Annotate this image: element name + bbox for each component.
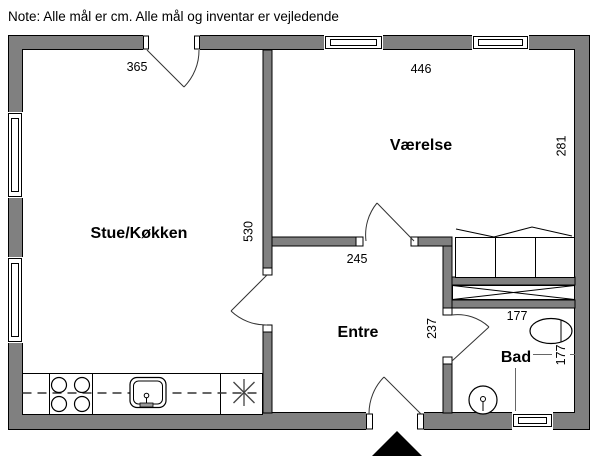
entrance-jamb-right bbox=[418, 414, 424, 429]
dim-entre-width: 245 bbox=[347, 252, 368, 266]
wall-entre-north-left bbox=[272, 237, 356, 246]
window-left-1 bbox=[7, 112, 24, 198]
dim-stue-depth: 530 bbox=[242, 221, 256, 242]
entrance-door-swing bbox=[369, 377, 421, 414]
top-door-swing bbox=[147, 50, 199, 87]
vaerelse-door-swing bbox=[366, 203, 414, 241]
wall-entre-east-upper bbox=[443, 246, 452, 308]
stue-door-swing bbox=[231, 275, 267, 325]
wall-center-lower bbox=[263, 332, 272, 413]
washbasin-icon bbox=[469, 386, 497, 414]
entrance-opening bbox=[366, 412, 424, 431]
room-label-stue: Stue/Køkken bbox=[91, 225, 188, 242]
room-label-vaerelse: Værelse bbox=[390, 137, 452, 154]
dim-vaerelse-depth: 281 bbox=[555, 136, 569, 157]
floor-plan-page: Note: Alle mål er cm. Alle mål og invent… bbox=[0, 0, 600, 467]
wall-entre-east-lower bbox=[443, 364, 452, 413]
window-top-1 bbox=[324, 34, 383, 51]
window-top-2 bbox=[472, 34, 529, 51]
room-label-bad: Bad bbox=[501, 349, 531, 366]
toilet-icon bbox=[530, 319, 572, 344]
entrance-jamb-left bbox=[367, 414, 373, 429]
top-door-jamb-right bbox=[195, 36, 200, 49]
wall-below-bed bbox=[452, 277, 575, 285]
wardrobe-icon bbox=[453, 286, 575, 300]
note-text: Note: Alle mål er cm. Alle mål og invent… bbox=[8, 9, 339, 24]
jamb-bad-door-top bbox=[443, 308, 452, 315]
window-left-2 bbox=[7, 257, 24, 343]
jamb-stue-door-top bbox=[263, 268, 272, 275]
wall-center-upper bbox=[263, 50, 272, 268]
dim-bad-depth: 177 bbox=[554, 345, 568, 366]
dim-entre-depth: 237 bbox=[425, 318, 439, 339]
bed-icon bbox=[456, 227, 575, 278]
window-bad bbox=[512, 412, 553, 431]
fixtures bbox=[23, 227, 575, 415]
wall-bad-north bbox=[452, 300, 575, 308]
dim-stue-width: 365 bbox=[127, 60, 148, 74]
jamb-bad-door-bottom bbox=[443, 357, 452, 364]
top-door-jamb-left bbox=[144, 36, 149, 49]
bad-door-swing bbox=[452, 315, 489, 361]
dim-bad-width: 177 bbox=[507, 309, 528, 323]
floor-plan: Note: Alle mål er cm. Alle mål og invent… bbox=[0, 0, 600, 467]
labels: Stue/Køkken Værelse Entre Bad 365 446 24… bbox=[91, 60, 569, 366]
room-label-entre: Entre bbox=[338, 324, 379, 341]
sink-icon bbox=[130, 378, 166, 408]
wall-entre-north-right bbox=[418, 237, 452, 246]
top-door-opening bbox=[143, 34, 200, 51]
door-swings bbox=[147, 50, 489, 414]
entrance-marker-icon bbox=[372, 431, 422, 456]
dim-vaerelse-width: 446 bbox=[411, 62, 432, 76]
jamb-stue-door-bottom bbox=[263, 325, 272, 332]
jamb-vaerelse-door-left bbox=[356, 237, 363, 246]
